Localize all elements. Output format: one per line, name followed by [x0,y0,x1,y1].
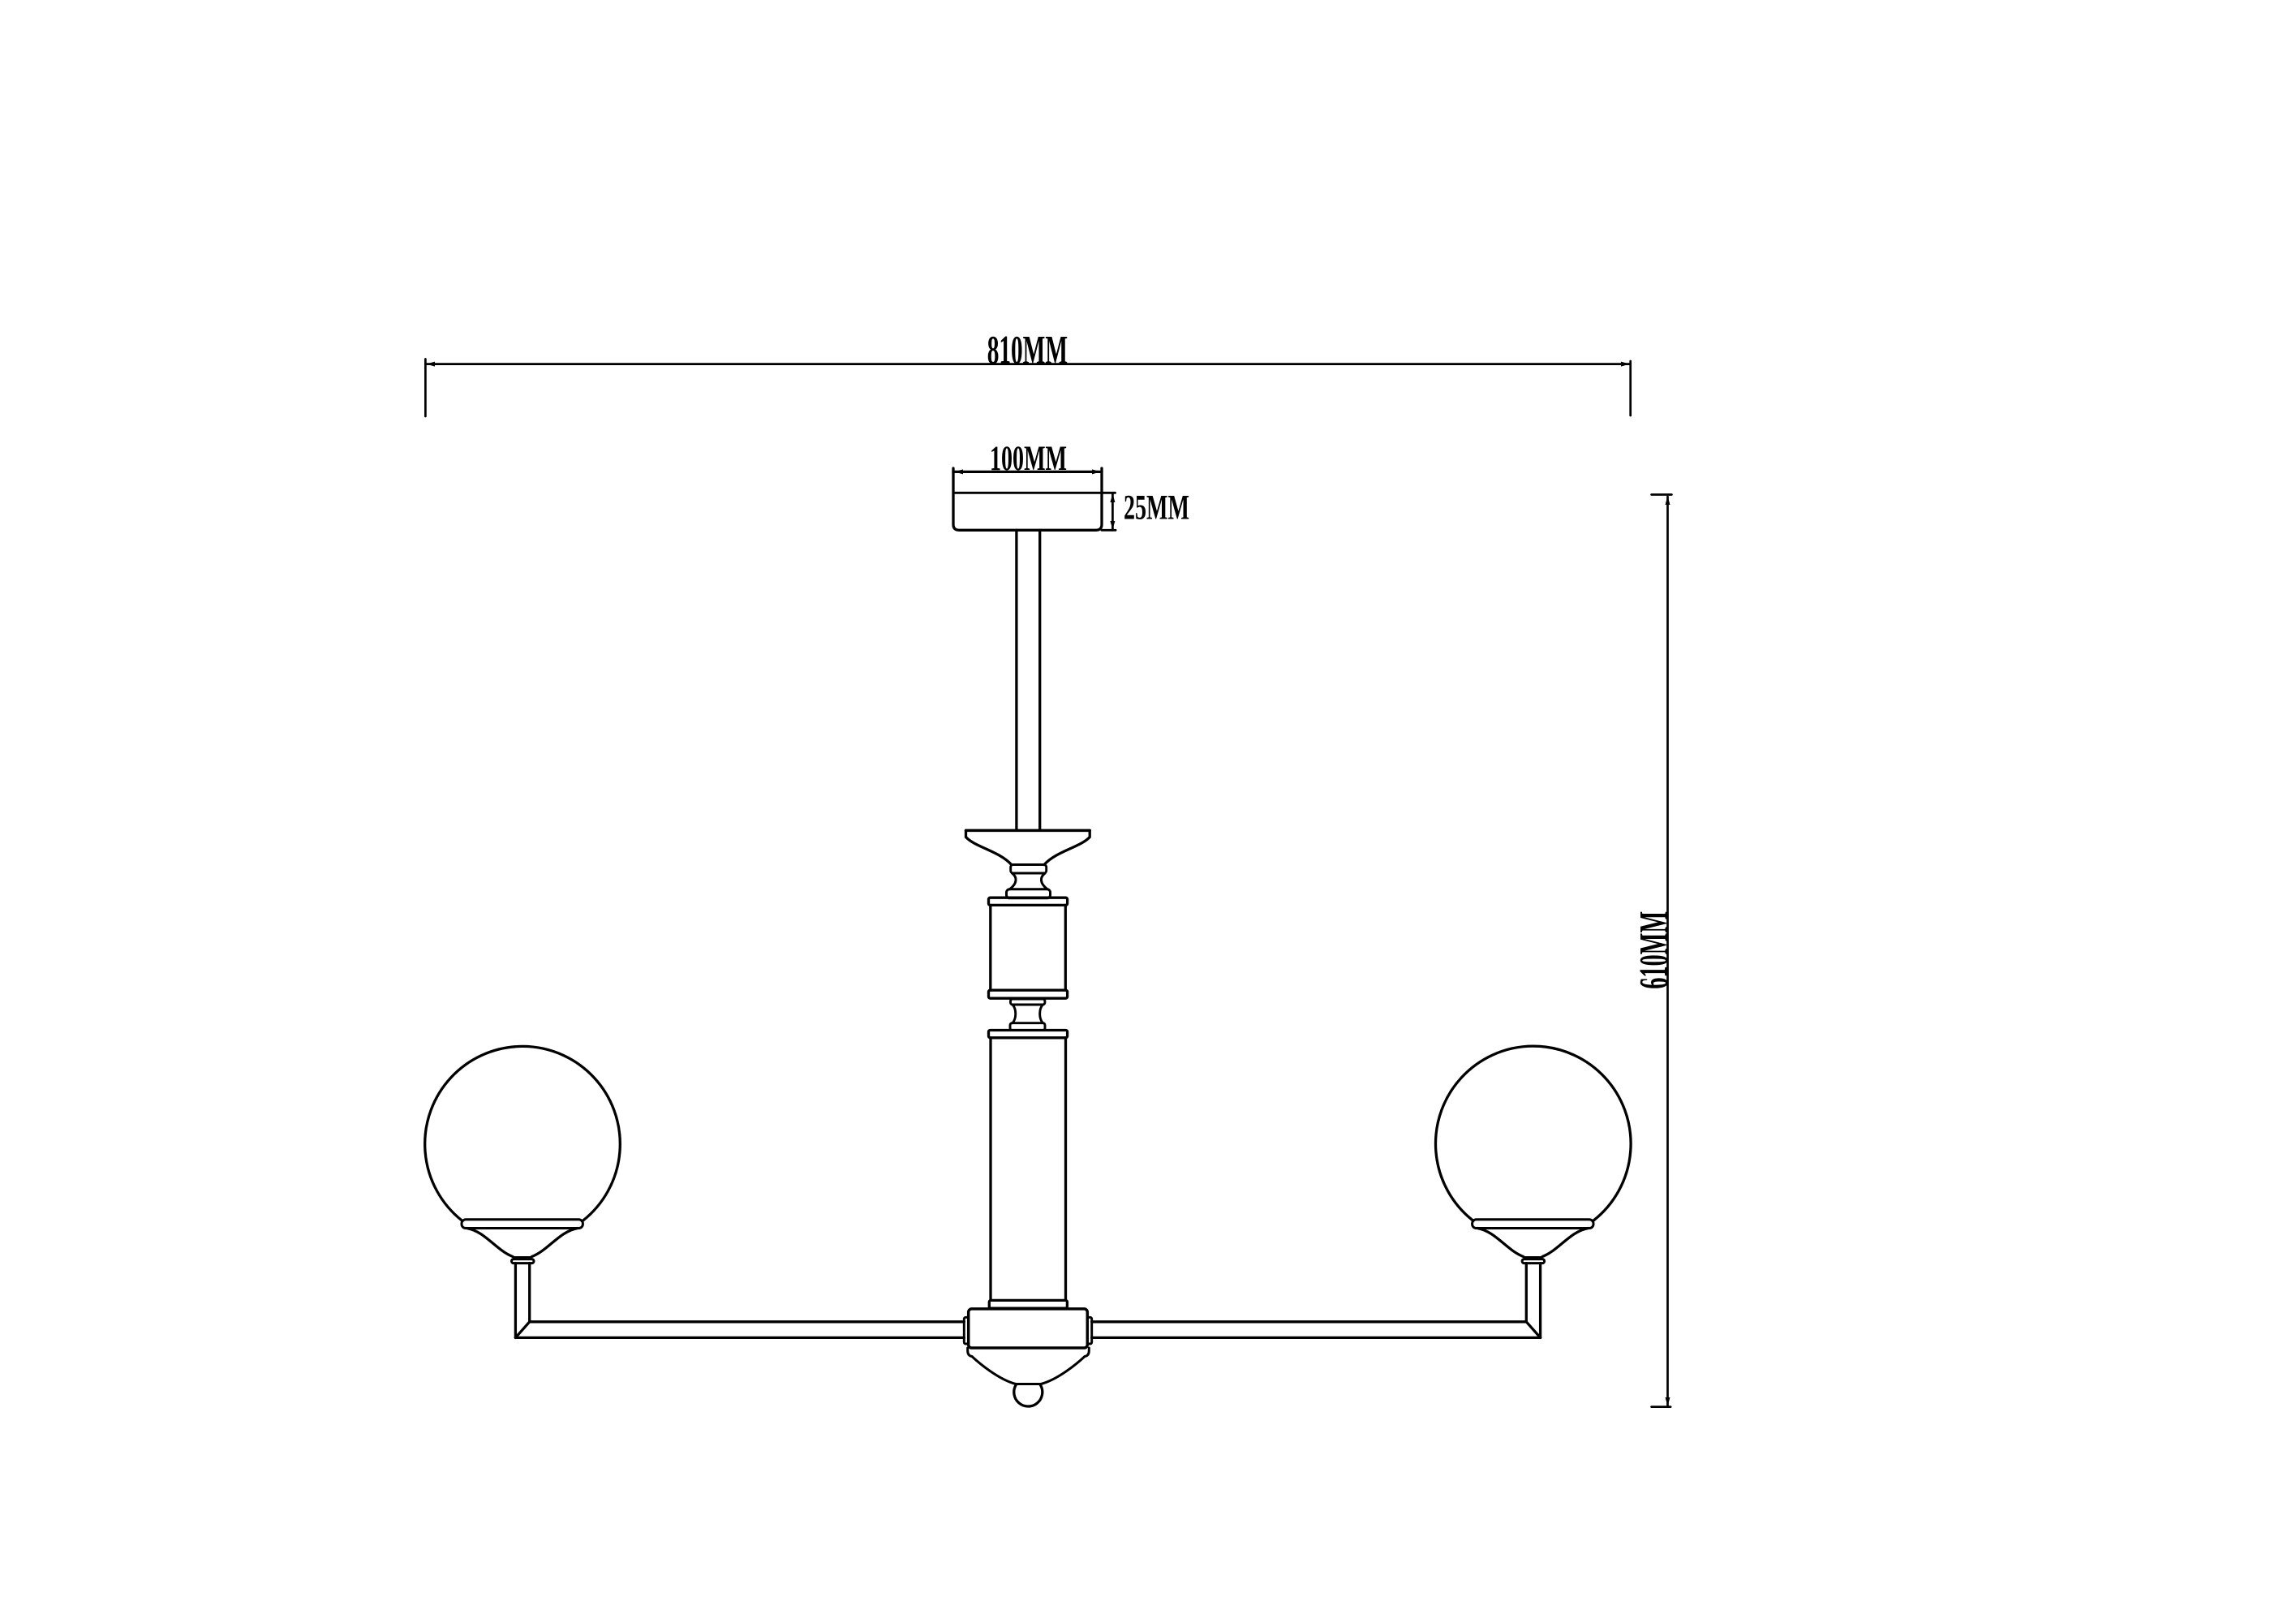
svg-text:25MM: 25MM [1124,489,1189,527]
svg-text:610MM: 610MM [1631,911,1676,989]
svg-text:810MM: 810MM [987,327,1068,372]
svg-text:100MM: 100MM [990,440,1067,478]
